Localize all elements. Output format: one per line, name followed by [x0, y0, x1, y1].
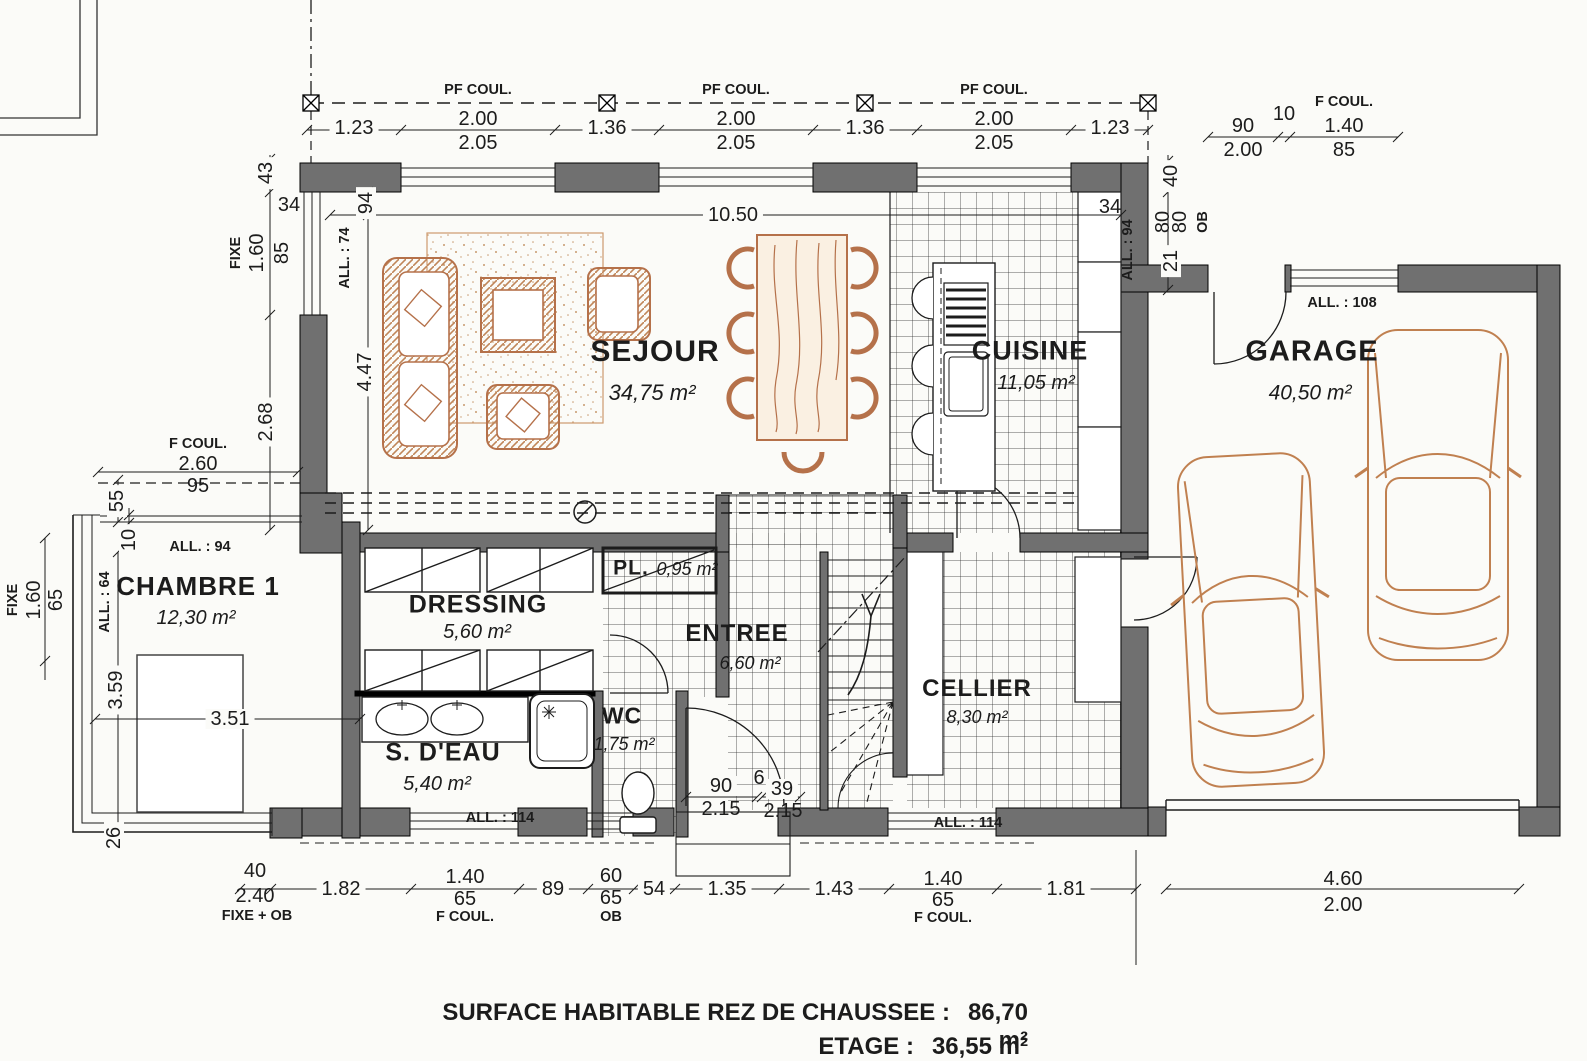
p_90-label: 90: [705, 776, 737, 796]
all114-label: ALL. : 114: [934, 816, 1003, 831]
t_200a-label: 2.00: [459, 109, 498, 129]
f_coul-label: F COUL.: [914, 911, 972, 926]
t_205c-label: 2.05: [975, 133, 1014, 153]
g_140-label: 1.40: [1325, 116, 1364, 136]
room-area-pl: 0,95 m²: [656, 560, 717, 578]
room-area-sdeau: 5,40 m²: [403, 774, 471, 794]
g_90-label: 90: [1232, 116, 1254, 136]
fixe-label: FIXE: [229, 237, 244, 269]
c_26-label: 26: [104, 822, 124, 854]
surface-etage-line: ETAGE :36,55 m²: [408, 1033, 1028, 1061]
room-label-sejour: SEJOUR: [590, 337, 719, 367]
room-area-dressing: 5,60 m²: [443, 622, 511, 642]
b_240-label: 2.40: [236, 886, 275, 906]
coffee-table: [481, 278, 555, 352]
room-area-chambre1: 12,30 m²: [157, 608, 236, 628]
l_268-label: 2.68: [256, 398, 276, 447]
b_60-label: 60: [600, 866, 622, 886]
car: [1163, 451, 1338, 789]
t_205a-label: 2.05: [459, 133, 498, 153]
pf_coul-label: PF COUL.: [960, 83, 1028, 98]
r_40-label: 40: [1161, 160, 1181, 192]
b_89-label: 89: [537, 879, 569, 899]
t_123b-label: 1.23: [1086, 118, 1135, 138]
room-area-entree: 6,60 m²: [719, 654, 780, 672]
b_65a-label: 65: [454, 889, 476, 909]
b_182-label: 1.82: [317, 879, 366, 899]
b_65b-label: 65: [600, 888, 622, 908]
floor-plan: SEJOUR 34,75 m² CUISINE 11,05 m² GARAGE …: [0, 0, 1587, 1061]
c_160-label: 1.60: [24, 581, 44, 620]
b_40-label: 40: [244, 861, 266, 881]
i_447-label: 4.47: [355, 348, 375, 397]
t_200c-label: 2.00: [975, 109, 1014, 129]
room-label-garage: GARAGE: [1245, 338, 1378, 367]
ob-label: OB: [1196, 211, 1211, 233]
r_80b-label: 80: [1170, 211, 1190, 233]
g_85-label: 85: [1333, 140, 1355, 160]
l_34-label: 34: [278, 195, 300, 215]
b_143-label: 1.43: [810, 879, 859, 899]
t_136b-label: 1.36: [841, 118, 890, 138]
b_135-label: 1.35: [703, 879, 752, 899]
c_10-label: 10: [119, 524, 139, 556]
room-area-sejour: 34,75 m²: [609, 382, 696, 404]
room-label-sdeau: S. D'EAU: [385, 741, 500, 766]
p_215b-label: 2.15: [764, 801, 803, 821]
g_200-label: 2.00: [1224, 140, 1263, 160]
room-area-cuisine: 11,05 m²: [997, 373, 1074, 393]
p_39-label: 39: [766, 779, 798, 799]
cellier-garage-door: [1134, 557, 1197, 620]
g_10-label: 10: [1273, 104, 1295, 124]
b_54-label: 54: [638, 879, 670, 899]
l_160-label: 1.60: [247, 229, 267, 278]
f_coul-label: F COUL.: [169, 437, 227, 452]
c_65-label: 65: [46, 589, 66, 611]
surface-rdc-label: SURFACE HABITABLE REZ DE CHAUSSEE :: [442, 999, 950, 1026]
bed: [137, 655, 243, 812]
p_215a-label: 2.15: [702, 799, 741, 819]
r_21-label: 21: [1161, 245, 1181, 277]
toilet: [622, 772, 654, 814]
pf_coul-label: PF COUL.: [444, 83, 512, 98]
c_55-label: 55: [107, 485, 127, 517]
room-label-cellier: CELLIER: [922, 677, 1032, 701]
armchair: [588, 268, 650, 340]
fixe-label: FIXE: [6, 584, 21, 616]
room-label-entree: ENTREE: [685, 622, 788, 646]
l_85-label: 85: [272, 242, 292, 264]
i_94-label: 94: [356, 187, 376, 219]
fc_95-label: 95: [187, 476, 209, 496]
pf_coul-label: PF COUL.: [702, 83, 770, 98]
neighbour-structure: [0, 0, 97, 135]
f_coul-label: F COUL.: [1315, 95, 1373, 110]
room-area-wc: 1,75 m²: [593, 735, 654, 753]
b_181-label: 1.81: [1042, 879, 1091, 899]
wardrobes: [365, 548, 593, 691]
all108-label: ALL. : 108: [1307, 296, 1376, 311]
b_140b-label: 1.40: [924, 869, 963, 889]
t_205b-label: 2.05: [717, 133, 756, 153]
all94-label: ALL. : 94: [169, 540, 230, 555]
ob-label: OB: [600, 910, 622, 925]
fixe_ob-label: FIXE + OB: [222, 909, 293, 924]
all64-label: ALL. : 64: [98, 571, 113, 632]
k_34-label: 34: [1099, 197, 1121, 217]
t_136a-label: 1.36: [583, 118, 632, 138]
room-label-chambre1: CHAMBRE 1: [116, 573, 280, 599]
cellier-shelf: [1075, 557, 1121, 702]
b_65c-label: 65: [932, 890, 954, 910]
i_1050-label: 10.50: [703, 205, 763, 225]
dining-table: [757, 235, 847, 440]
p_6-label: 6: [753, 768, 764, 788]
room-label-dressing: DRESSING: [409, 593, 548, 618]
room-label-pl: PL.: [613, 558, 649, 579]
room-label-wc: WC: [602, 705, 642, 728]
room-area-cellier: 8,30 m²: [946, 708, 1007, 726]
car: [1355, 330, 1521, 660]
all74-label: ALL. : 74: [338, 227, 353, 288]
b_200-label: 2.00: [1324, 895, 1363, 915]
surface-etage-label: ETAGE :: [818, 1033, 914, 1060]
sofa: [383, 258, 457, 458]
t_123a-label: 1.23: [330, 118, 379, 138]
room-area-garage: 40,50 m²: [1269, 383, 1352, 404]
t_200b-label: 2.00: [717, 109, 756, 129]
f_coul-label: F COUL.: [436, 910, 494, 925]
cellier-shelf: [907, 552, 943, 775]
room-label-cuisine: CUISINE: [972, 338, 1089, 365]
armchair: [487, 385, 559, 449]
b_140a-label: 1.40: [446, 867, 485, 887]
c_359-label: 3.59: [106, 666, 126, 715]
no-access-symbol: [574, 501, 596, 523]
all114-label: ALL. : 114: [466, 811, 535, 826]
fc_260-label: 2.60: [179, 454, 218, 474]
surface-etage-value: 36,55 m²: [932, 1033, 1028, 1060]
b_460-label: 4.60: [1324, 869, 1363, 889]
all94-label: ALL. : 94: [1121, 219, 1136, 280]
l_43-label: 43: [256, 157, 276, 189]
c_351-label: 3.51: [206, 709, 255, 729]
